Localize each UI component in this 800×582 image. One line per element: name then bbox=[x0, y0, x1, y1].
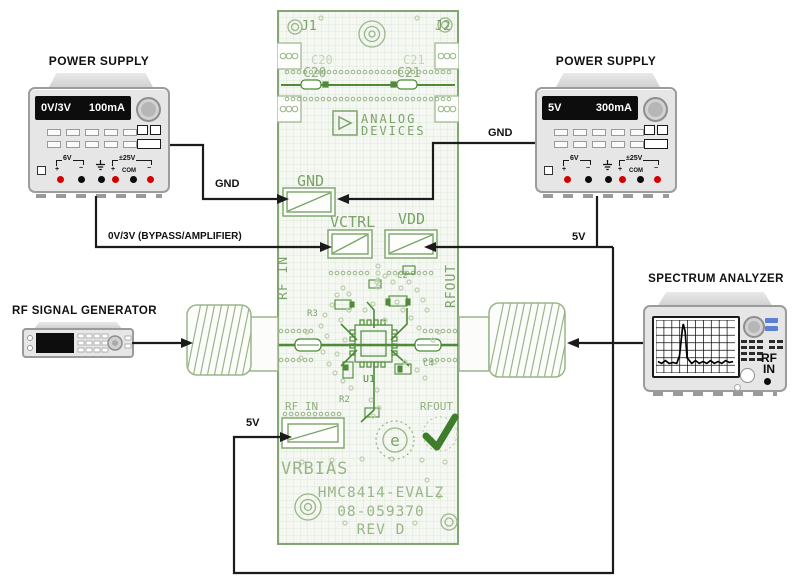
vctrl-pad bbox=[328, 230, 372, 258]
plus-label: + bbox=[54, 166, 60, 173]
terminal-6v-label: 6V bbox=[62, 155, 73, 162]
plus-label: + bbox=[561, 166, 567, 173]
pcb-label-rfout: RFOUT bbox=[420, 400, 453, 413]
sa-display bbox=[652, 316, 740, 378]
bnc-connector-icon bbox=[740, 368, 755, 383]
minus-label: − bbox=[146, 165, 152, 172]
terminal-red bbox=[147, 176, 154, 183]
sa-blue-button bbox=[765, 326, 778, 331]
sma-connector-right bbox=[459, 301, 574, 379]
e-mark-glyph: e bbox=[390, 431, 400, 450]
in-label: IN bbox=[756, 364, 782, 375]
psu-left-title: POWER SUPPLY bbox=[33, 54, 165, 68]
rf-generator-title: RF SIGNAL GENERATOR bbox=[12, 305, 157, 317]
pcb-label-vdd: VDD bbox=[398, 210, 425, 228]
vrbias-pad bbox=[282, 418, 344, 448]
terminal-25v-label: ±25V bbox=[118, 155, 136, 162]
pcb-label-vrbias: VRBIAS bbox=[281, 459, 348, 479]
brand-line2: DEVICES bbox=[361, 124, 426, 138]
mounting-holes bbox=[288, 18, 457, 530]
rfgen-keypad bbox=[78, 334, 108, 352]
terminal-black bbox=[637, 176, 644, 183]
sma-connector-left bbox=[186, 303, 278, 377]
wire-label-5v-vrbias: 5V bbox=[246, 417, 259, 429]
plus-label: + bbox=[110, 166, 116, 173]
terminal-25v-label: ±25V bbox=[625, 155, 643, 162]
plus-label: + bbox=[617, 166, 623, 173]
sa-feet bbox=[653, 392, 777, 396]
rf-in-port bbox=[764, 378, 771, 385]
vdd-pad bbox=[385, 230, 437, 258]
psu-button bbox=[150, 125, 161, 135]
pcb-part-number: HMC8414-EVALZ bbox=[318, 485, 445, 501]
sa-spectrum-plot bbox=[656, 320, 735, 373]
terminal-red bbox=[654, 176, 661, 183]
ground-icon bbox=[602, 160, 613, 171]
arrowhead bbox=[567, 338, 579, 348]
terminal-6v-label: 6V bbox=[569, 155, 580, 162]
pcb-label-r2: R2 bbox=[339, 395, 350, 405]
adi-logo bbox=[333, 111, 357, 135]
psu-button-wide bbox=[644, 139, 668, 149]
arrowhead bbox=[181, 338, 193, 348]
psu-feet bbox=[36, 194, 162, 198]
sa-rf-in-label: RF IN bbox=[756, 353, 782, 375]
pcb-label-j1: J1 bbox=[301, 19, 317, 34]
pcb-label-rfin: RF IN bbox=[285, 400, 318, 413]
psu-voltage: 5V bbox=[548, 102, 561, 114]
psu-keypad bbox=[47, 129, 137, 148]
psu-current: 100mA bbox=[89, 102, 125, 114]
pcb-label-u1: U1 bbox=[363, 374, 375, 385]
pcb-label-c21: C21 bbox=[397, 66, 420, 81]
psu-power-switch bbox=[37, 166, 46, 175]
pcb-label-rfout-side: RFOUT bbox=[444, 264, 459, 308]
com-label: COM bbox=[121, 168, 137, 175]
psu-button bbox=[657, 125, 668, 135]
sa-blue-button bbox=[765, 318, 778, 323]
psu-button-wide bbox=[137, 139, 161, 149]
pcb-label-vctrl: VCTRL bbox=[330, 213, 375, 231]
pcb-artwork: e J1 J2 C20 C20 C21 C21 ANALOG DEVICES G… bbox=[277, 10, 459, 545]
psu-button bbox=[644, 125, 655, 135]
wire-label-gnd-left: GND bbox=[215, 178, 239, 190]
test-setup-diagram: e J1 J2 C20 C20 C21 C21 ANALOG DEVICES G… bbox=[0, 0, 800, 582]
psu-current: 300mA bbox=[596, 102, 632, 114]
wire-gnd-left bbox=[170, 145, 278, 199]
knob-icon bbox=[136, 97, 161, 122]
minus-label: − bbox=[78, 165, 84, 172]
spectrum-analyzer-title: SPECTRUM ANALYZER bbox=[648, 273, 784, 285]
checkmark-icon bbox=[423, 417, 457, 451]
rf-signal-generator bbox=[22, 322, 134, 360]
terminal-black bbox=[78, 176, 85, 183]
spectrum-analyzer: RF IN bbox=[643, 292, 787, 396]
pcb-label-r3: R3 bbox=[307, 309, 318, 319]
pcb-label-c4: C4 bbox=[423, 359, 434, 369]
pcb-label-c20-faint: C20 bbox=[311, 53, 333, 67]
com-label: COM bbox=[628, 168, 644, 175]
sa-screw bbox=[734, 384, 741, 391]
e-mark: e bbox=[376, 421, 414, 459]
psu-feet bbox=[543, 194, 669, 198]
gnd-pad bbox=[283, 188, 335, 216]
wire-label-gnd-right: GND bbox=[488, 127, 512, 139]
minus-label: − bbox=[585, 165, 591, 172]
knob-icon bbox=[743, 316, 765, 338]
psu-button bbox=[137, 125, 148, 135]
minus-label: − bbox=[653, 165, 659, 172]
power-supply-right: 5V 300mA 6V + − ±25V + COM − bbox=[535, 73, 677, 198]
psu-keypad bbox=[554, 129, 644, 148]
knob-icon bbox=[643, 97, 668, 122]
eval-board: e J1 J2 C20 C20 C21 C21 ANALOG DEVICES G… bbox=[277, 10, 459, 545]
pcb-label-gnd: GND bbox=[297, 172, 324, 190]
rfgen-display bbox=[36, 333, 74, 353]
rfgen-front-panel bbox=[22, 328, 134, 358]
pcb-serial: 08-059370 bbox=[337, 504, 425, 520]
power-supply-left: 0V/3V 100mA 6V + − ±25V + COM − bbox=[28, 73, 170, 198]
psu-voltage: 0V/3V bbox=[41, 102, 71, 114]
psu-power-switch bbox=[544, 166, 553, 175]
wire-5v-vdd bbox=[435, 196, 613, 247]
ground-icon bbox=[95, 160, 106, 171]
terminal-black bbox=[605, 176, 612, 183]
pcb-rev: REV D bbox=[357, 522, 406, 538]
pcb-label-c20: C20 bbox=[303, 66, 326, 81]
psu-right-title: POWER SUPPLY bbox=[540, 54, 672, 68]
pcb-label-j2: J2 bbox=[435, 19, 451, 34]
terminal-red bbox=[57, 176, 64, 183]
pcb-label-c21-faint: C21 bbox=[403, 53, 425, 67]
pcb-label-c2: C2 bbox=[397, 271, 408, 281]
wire-label-5v-vdd: 5V bbox=[572, 231, 585, 243]
terminal-black bbox=[585, 176, 592, 183]
pcb-label-rfin-side: RF IN bbox=[277, 256, 291, 300]
terminal-black bbox=[98, 176, 105, 183]
wire-label-bypass: 0V/3V (BYPASS/AMPLIFIER) bbox=[108, 231, 242, 242]
terminal-red bbox=[619, 176, 626, 183]
terminal-red bbox=[564, 176, 571, 183]
psu-display: 0V/3V 100mA bbox=[35, 96, 131, 120]
psu-display: 5V 300mA bbox=[542, 96, 638, 120]
terminal-red bbox=[112, 176, 119, 183]
terminal-black bbox=[130, 176, 137, 183]
